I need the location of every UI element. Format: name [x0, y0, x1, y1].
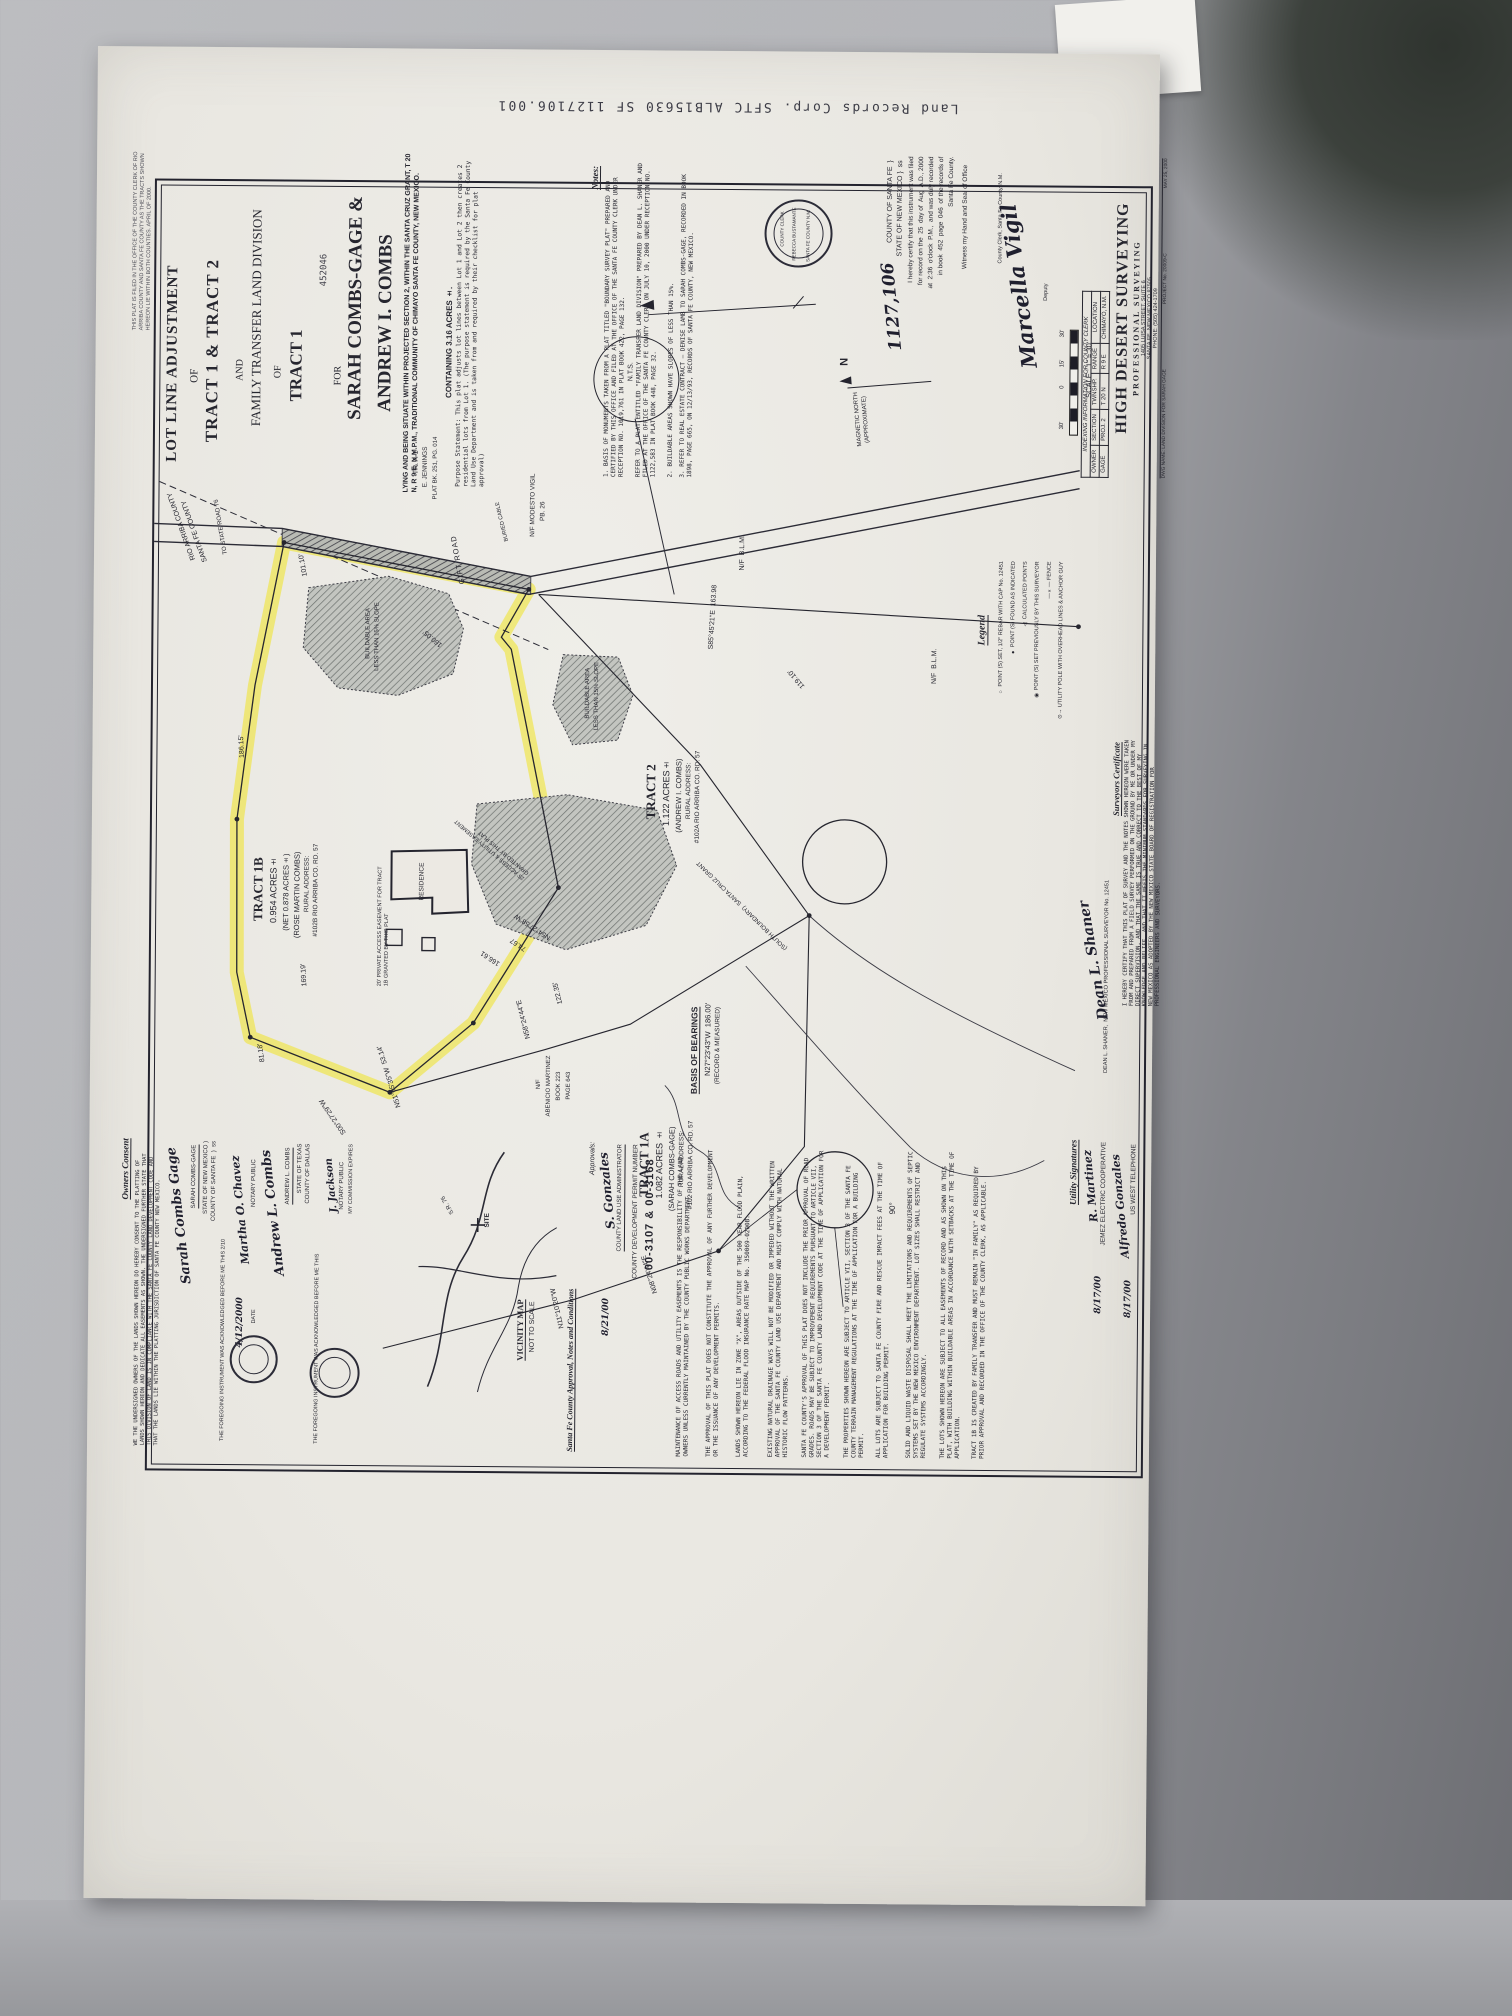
- basis-of-bearings-header: BASIS OF BEARINGS: [690, 1007, 700, 1094]
- book-page-stamp: 452046: [320, 254, 330, 287]
- detail-circle-a: [802, 820, 887, 905]
- purpose-statement: Purpose Statement: This plat adjusts lot…: [455, 157, 489, 487]
- adjoiner-tr-a1-3: PLAT BK. 251, PG. 014: [432, 437, 439, 500]
- legend-item-utility-pole: ⊙→ UTILITY POLE WITH OVERHEAD LINES & AN…: [1053, 562, 1072, 726]
- note-3: 3. REFER TO REAL ESTATE CONTRACT – DENIS…: [679, 163, 696, 478]
- company-project-no: PROJECT No. 20009-C: [1163, 253, 1168, 304]
- condition-6: ALL LOTS ARE SUBJECT TO SANTA FE COUNTY …: [875, 1146, 892, 1458]
- utility-pole-icon: ⊙→: [1058, 709, 1064, 719]
- records-stamp: Land Records Corp. SFTC ALB15630 SF 1127…: [447, 97, 1007, 116]
- owner-name-line-1: SARAH COMBS-GAGE: [191, 1145, 200, 1209]
- basis-of-bearings-note: (RECORD & MEASURED): [715, 1007, 722, 1084]
- buildable-label-2b: LESS THAN 15% SLOPE: [594, 662, 601, 731]
- owner-name-line-2: ANDREW L. COMBS: [285, 1148, 294, 1205]
- condition-7: SOLID AND LIQUID WASTE DISPOSAL SHALL ME…: [905, 1146, 930, 1458]
- company-name: HIGH DESERT SURVEYING: [1113, 158, 1134, 478]
- permit-number: 00-3107 & 00-3168: [644, 1158, 656, 1270]
- residence-label: RESIDENCE: [419, 863, 426, 901]
- commission-expires: MY COMMISSION EXPIRES: [349, 1144, 355, 1214]
- survey-plat-paper: Land Records Corp. SFTC ALB15630 SF 1127…: [83, 46, 1160, 1906]
- note-1b: REFER TO A PLAT ENTITLED "FAMILY TRANSFE…: [635, 162, 660, 477]
- indexing-col-range: RANGE: [1091, 343, 1100, 373]
- adjoiner-blm-1: N/F B.L.M.: [739, 535, 747, 570]
- adjoiner-tr-a1-2: E. JENNINGS: [423, 447, 430, 488]
- margin-recording-note: THIS PLAT IS FILED IN THE OFFICE OF THE …: [132, 150, 154, 330]
- ack2-county: COUNTY OF DALLAS: [305, 1144, 312, 1204]
- note-1: 1. BASIS OF MONUMENTS TAKEN FROM A PLAT …: [603, 162, 628, 477]
- scale-tick-15: 15': [1060, 360, 1066, 368]
- buildable-label-1a: BUILDABLE AREA: [365, 608, 372, 659]
- adjoiner-martinez-3: BOOK 223: [556, 1072, 563, 1101]
- county-clerk-seal: COUNTY CLERK REBECCA BUSTAMANTE SANTA FE…: [764, 199, 833, 268]
- scale-tick-30b: 30': [1059, 422, 1065, 430]
- adjoiner-blm-2: N/F B.L.M.: [931, 649, 939, 684]
- notary1-seal-ring: [239, 1344, 269, 1374]
- county-clerk-seal-text2: REBECCA BUSTAMANTE: [792, 207, 797, 260]
- plat-title-line1: LOT LINE ADJUSTMENT: [165, 265, 182, 462]
- recording-line8: Witness my Hand and Seal of Office: [962, 165, 970, 269]
- vicinity-site-label: SITE: [485, 1213, 492, 1228]
- ack1-state: STATE OF NEW MEXICO ): [203, 1141, 210, 1214]
- county-clerk-signature-title: County Clerk, Santa Fe County, N.M.: [998, 173, 1004, 263]
- adjoiner-martinez-4: PAGE 643: [566, 1072, 573, 1100]
- plat-title-line3: FAMILY TRANSFER LAND DIVISION: [249, 209, 264, 426]
- tract1b-addr1: RURAL ADDRESS:: [304, 856, 311, 913]
- notary1-label: NOTARY PUBLIC: [251, 1159, 258, 1207]
- buildable-label-1b: LESS THAN 15% SLOPE: [374, 602, 381, 671]
- point-found-icon: ●: [1010, 649, 1016, 655]
- desk-bottom-strip: [0, 1900, 1512, 2016]
- easement-20ft-label: 20' PRIVATE ACCESS EASEMENT FOR TRACT 1B…: [377, 866, 392, 986]
- plat-title-line4: TRACT 1: [287, 329, 305, 401]
- tract2-owner: (ANDREW I. COMBS): [675, 759, 683, 833]
- fence-icon: —×—: [1046, 582, 1052, 599]
- utility-co-1: JEMEZ ELECTRIC COOPERATIVE: [1101, 1142, 1109, 1246]
- condition-8: THE LOTS SHOWN HEREON ARE SUBJECT TO ALL…: [939, 1147, 964, 1459]
- shed-2: [422, 938, 435, 951]
- situate-paragraph: LYING AND BEING SITUATE WITHIN PROJECTED…: [403, 152, 423, 492]
- company-block-wrap: HIGH DESERT SURVEYING PROFESSIONAL SURVE…: [1113, 158, 1170, 478]
- legend-header: Legend: [977, 615, 988, 646]
- detail-balloon: [593, 336, 680, 423]
- notary2-seal: [309, 1348, 359, 1398]
- company-phone: PHONE: (505) 424-1709: [1152, 158, 1161, 478]
- condition-2: LANDS SHOWN HEREON LIE IN ZONE "X", AREA…: [735, 1145, 752, 1457]
- plat-title-and: AND: [235, 359, 246, 381]
- recording-line3: I hereby certify that this instrument wa…: [908, 156, 916, 283]
- indexing-col-twnshp: TWNSHP.: [1091, 374, 1100, 410]
- buildable-label-2a: BUILDABLE AREA: [585, 668, 592, 719]
- surveyor-cert-header: Surveyors Certificate: [1112, 742, 1122, 816]
- recording-line1: COUNTY OF SANTA FE }: [886, 160, 894, 243]
- utility-co-2: US WEST TELEPHONE: [1131, 1144, 1138, 1215]
- tract1b-net: (NET 0.878 ACRES±): [282, 853, 290, 930]
- adjoiner-vigil-2: PB. 26: [540, 501, 547, 521]
- plat-title-of1: OF: [189, 369, 201, 383]
- tract1a-owner: (SARAH COMBS-GAGE): [668, 1127, 677, 1212]
- north-arrow-head: [640, 300, 655, 311]
- indexing-val-twnshp: T 20 N: [1100, 374, 1109, 410]
- utility-date-2: 8/17/00: [1124, 1280, 1134, 1318]
- tract2-addr2: #102A RIO ARRIBA CO. RD. 57: [695, 751, 703, 844]
- permit-number-label: COUNTY DEVELOPMENT PERMIT NUMBER: [632, 1144, 640, 1278]
- surveyor-cert-body: I HEREBY CERTIFY THAT THIS PLAT OF SURVE…: [1122, 738, 1163, 1006]
- scale-bar: [1069, 330, 1079, 436]
- calculated-point-icon: △: [1022, 621, 1028, 627]
- ack1-county: COUNTY OF SANTA FE ) ss: [211, 1141, 218, 1221]
- utility-date-1: 8/17/00: [1094, 1276, 1104, 1314]
- notary2-label: NOTARY PUBLIC: [339, 1162, 346, 1210]
- dist-16919: 169.19': [300, 963, 309, 986]
- tract1b-name: TRACT 1B: [251, 857, 265, 921]
- owners-consent-header: Owners Consent: [121, 1138, 131, 1199]
- condition-4: SANTA FE COUNTY'S APPROVAL OF THIS PLAT …: [801, 1146, 833, 1458]
- approval-date: 8/21/00: [602, 1298, 612, 1336]
- scale-tick-30a: 30': [1060, 330, 1066, 338]
- vicinity-map-label: VICINITY MAP: [516, 1299, 525, 1360]
- adjoiner-tr-a1-1: TR. A-1: [413, 450, 421, 474]
- tract2-name: TRACT 2: [644, 764, 658, 819]
- detail-balloon-nts: N.T.S.: [627, 362, 634, 381]
- road-edge-1: [154, 463, 1080, 580]
- recording-line5: at 2:36 o'clock P.M., and was duly recor…: [928, 157, 936, 289]
- county-clerk-seal-text1: COUNTY CLERK: [780, 211, 785, 246]
- residence-outline: [391, 849, 469, 914]
- indexing-col-section: SECTION: [1090, 410, 1099, 446]
- utility-signatures-header: Utility Signatures: [1069, 1140, 1079, 1205]
- recording-line2: STATE OF NEW MEXICO } ss: [896, 160, 904, 256]
- tract2-addr1: RURAL ADDRESS:: [686, 763, 693, 820]
- condition-3: EXISTING NATURAL DRAINAGE WAYS WILL NOT …: [767, 1145, 792, 1457]
- detail-b-leader2: [834, 1228, 844, 1307]
- indexing-val-location: CHIMAYO, N.M.: [1100, 291, 1109, 344]
- tract1b-addr2: #102B RIO ARRIBA CO. RD. 57: [313, 844, 321, 937]
- plat-title-of2: OF: [273, 365, 284, 378]
- owner-name-2: ANDREW I. COMBS: [375, 234, 396, 412]
- owner-name-1: SARAH COMBS-GAGE &: [345, 196, 367, 420]
- plat-title-for: FOR: [333, 366, 344, 386]
- magnetic-north-n: N: [840, 358, 852, 366]
- plat-title-line2: TRACT 1 & TRACT 2: [203, 259, 222, 442]
- deputy-label: Deputy: [1044, 283, 1050, 300]
- county-clerk-seal-text3: SANTA FE COUNTY N.M.: [806, 210, 811, 262]
- basis-of-bearings-value: N27°23'43"W 186.00': [704, 1003, 712, 1076]
- owners-consent-body: WE THE UNDERSIGNED OWNERS OF THE LANDS S…: [133, 1140, 162, 1445]
- notary1-seal: [230, 1335, 278, 1383]
- condition-0: MAINTENANCE OF ACCESS ROADS AND UTILITY …: [675, 1145, 692, 1457]
- condition-9: TRACT 1B IS CREATED BY FAMILY TRANSFER A…: [971, 1147, 988, 1459]
- vicinity-map: [417, 1147, 559, 1398]
- company-date: MAY 25, 2000: [1164, 158, 1169, 188]
- indexing-col-location: LOCATION: [1091, 291, 1100, 344]
- approvals-label: Approvals:: [589, 1142, 597, 1175]
- tract1b-area: 0.954 ACRES±: [269, 857, 279, 923]
- indexing-val-section: PROJ. 2: [1099, 410, 1108, 446]
- containing-note: CONTAINING 3.16 ACRES ±.: [445, 287, 454, 398]
- point-set-icon: ○: [998, 688, 1004, 694]
- adjoiner-martinez-1: N/F: [536, 1079, 542, 1089]
- corner-shadow: [1150, 0, 1512, 340]
- arroyo-squiggle-1: [808, 916, 1076, 1071]
- buildable-area-1b: [303, 576, 464, 696]
- condition-5: THE PROPERTIES SHOWN HEREON ARE SUBJECT …: [843, 1146, 868, 1458]
- approval-title: COUNTY LAND USE ADMINISTRATOR: [617, 1144, 626, 1251]
- magnetic-north-head: [839, 376, 852, 385]
- dist-18615: 186.15': [238, 735, 246, 758]
- notary1-date-label: DATE: [252, 1309, 258, 1323]
- recording-line6: in book 452 page 046 of the records of: [938, 157, 946, 276]
- scale-tick-0: 0: [1059, 386, 1065, 389]
- tract2-area: 1.122 ACRES±: [662, 760, 672, 826]
- company-dwg-name: DWG NAME: LAND DIVISION FOR SARAH GAGE: [1162, 369, 1168, 478]
- indexing-val-range: R 9 E: [1100, 343, 1109, 373]
- notes-header: Notes:: [591, 166, 601, 190]
- tract1b-owner: (ROSE MARTIN COMBS): [293, 852, 302, 939]
- adjoiner-vigil-1: N/F MODESTO VIGIL: [530, 473, 537, 537]
- adjoiner-martinez-2: ABENICIO MARTINEZ: [546, 1056, 553, 1117]
- condition-1: THE APPROVAL OF THIS PLAT DOES NOT CONST…: [705, 1145, 722, 1457]
- vicinity-nts-label: NOT TO SCALE: [529, 1301, 537, 1352]
- notary2-seal-ring: [318, 1357, 350, 1389]
- previous-point-icon: ◉: [1034, 692, 1040, 698]
- recording-line4: for record on the 25 day of Aug A.D., 20…: [918, 156, 926, 285]
- ack2-state: STATE OF TEXAS: [297, 1144, 304, 1194]
- recording-line7: Santa Fe County.: [949, 157, 956, 207]
